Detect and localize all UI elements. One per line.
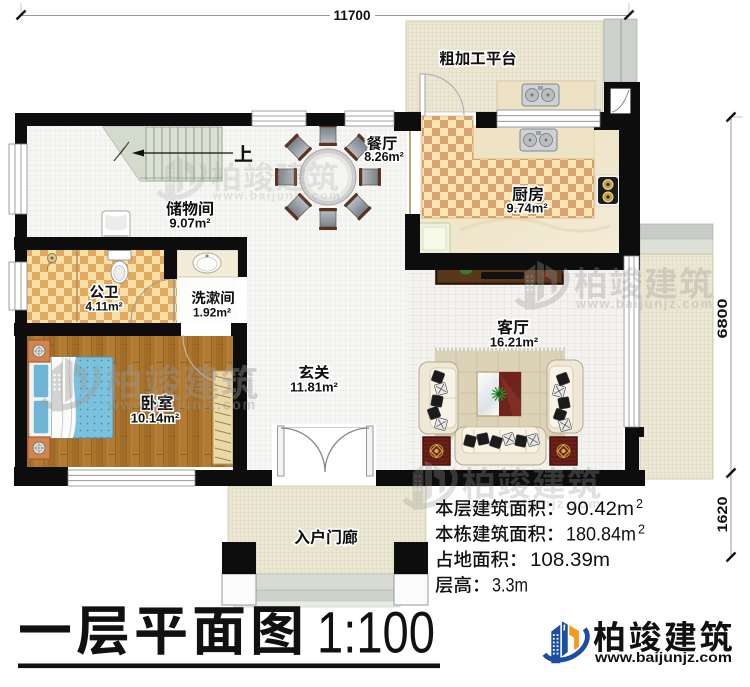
svg-text:www.baijunjz.com: www.baijunjz.com (212, 189, 342, 203)
svg-text:90.42m: 90.42m (566, 498, 634, 520)
svg-text:www.baijunjz.com: www.baijunjz.com (107, 398, 257, 414)
svg-text:4.11m²: 4.11m² (85, 300, 122, 314)
svg-text:8.26m²: 8.26m² (364, 150, 404, 164)
svg-text:1620: 1620 (714, 496, 730, 532)
svg-text:2: 2 (636, 497, 643, 511)
svg-text:2: 2 (638, 523, 645, 537)
svg-text:1:100: 1:100 (317, 601, 435, 666)
svg-text:6800: 6800 (714, 298, 730, 338)
svg-text:11.81m²: 11.81m² (290, 380, 338, 395)
svg-text:108.39m: 108.39m (530, 549, 610, 571)
svg-text:www.baijunjz.com: www.baijunjz.com (594, 650, 732, 665)
svg-text:180.84m: 180.84m (566, 524, 636, 546)
svg-text:1.92m²: 1.92m² (193, 306, 231, 320)
svg-text:16.21m²: 16.21m² (490, 335, 539, 350)
svg-text:3.3m: 3.3m (492, 575, 528, 597)
svg-text:9.74m²: 9.74m² (506, 201, 548, 216)
svg-text:9.07m²: 9.07m² (169, 216, 211, 231)
svg-text:11700: 11700 (334, 8, 371, 23)
svg-text:www.baijunjz.com: www.baijunjz.com (575, 296, 714, 311)
